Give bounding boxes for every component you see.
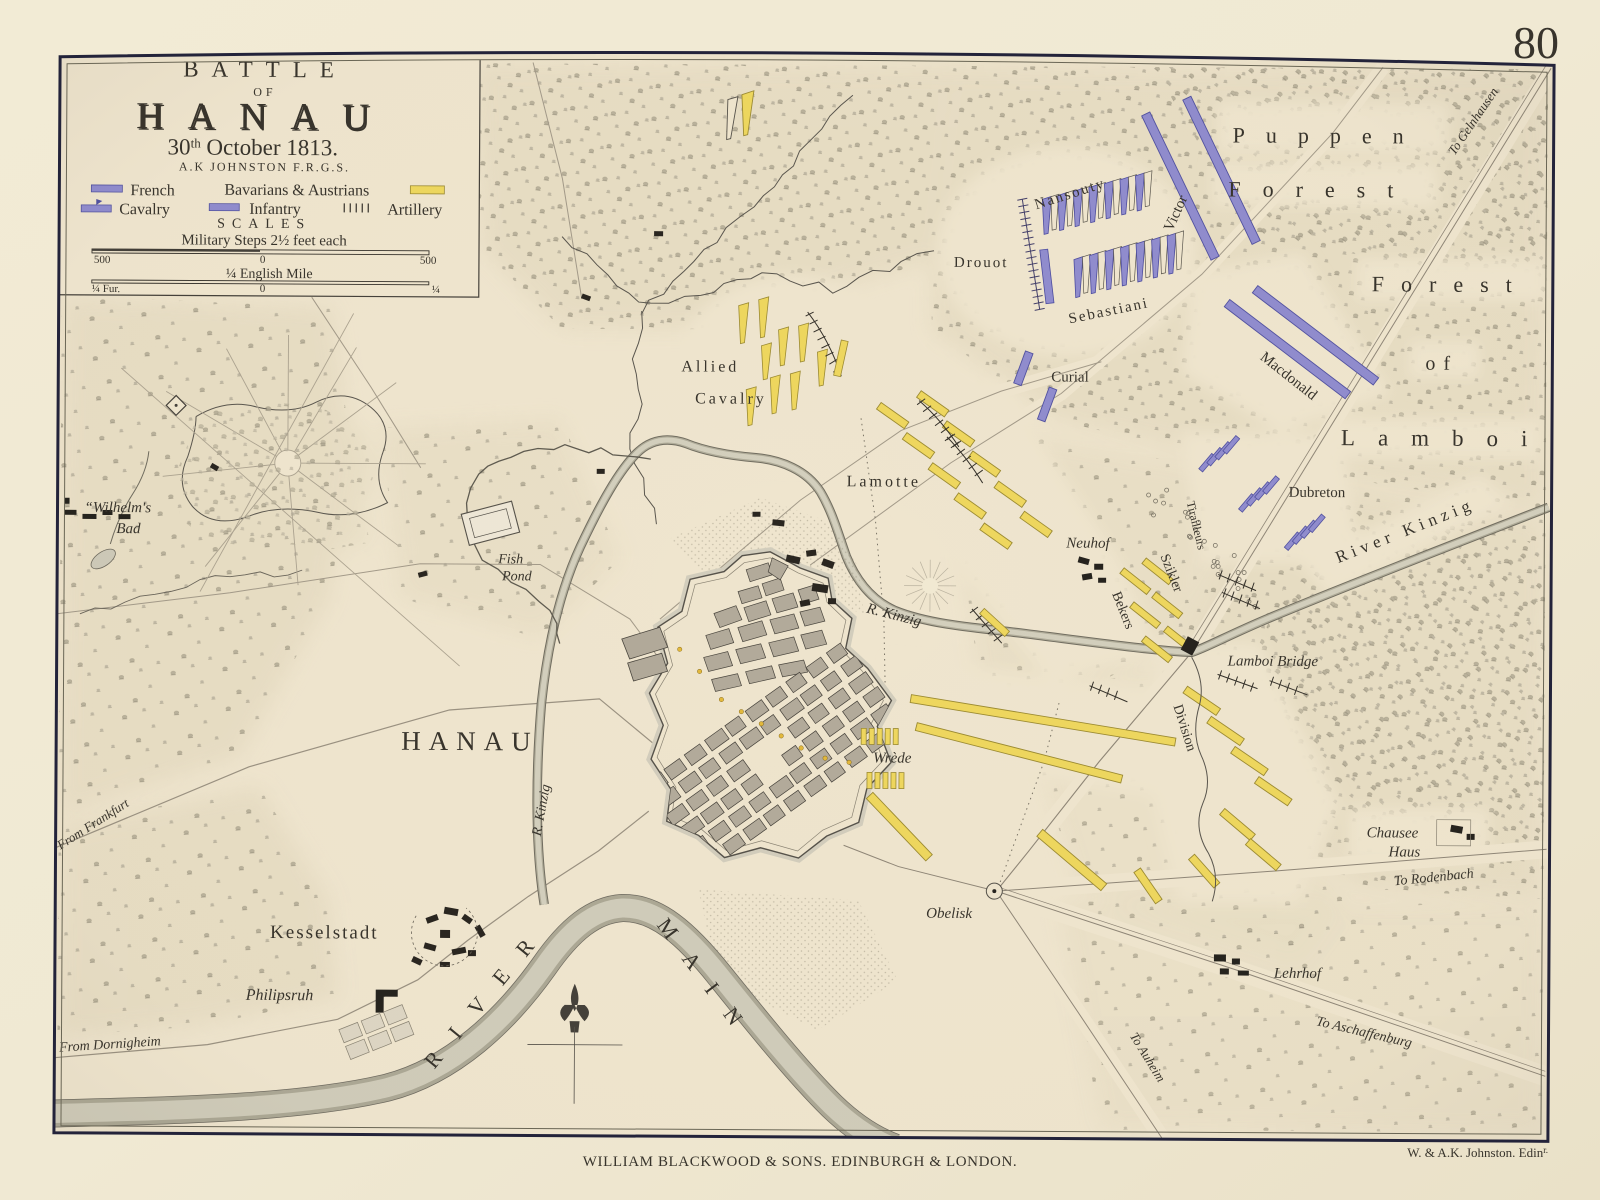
svg-text:WILLIAM BLACKWOOD & SONS. EDIN: WILLIAM BLACKWOOD & SONS. EDINBURGH & LO… xyxy=(583,1154,1017,1170)
svg-text:80: 80 xyxy=(1513,17,1559,68)
svg-text:W. & A.K. Johnston. Edinr.: W. & A.K. Johnston. Edinr. xyxy=(1407,1145,1548,1160)
